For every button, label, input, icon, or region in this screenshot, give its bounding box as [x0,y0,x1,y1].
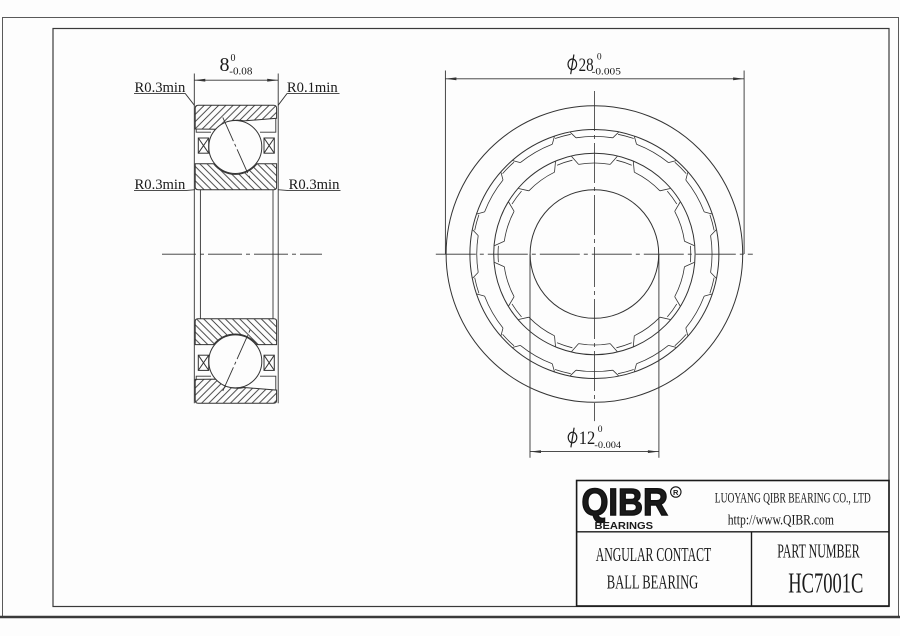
svg-text:-0.004: -0.004 [594,441,621,451]
svg-text:12: 12 [579,428,596,449]
svg-text:BALL BEARING: BALL BEARING [607,572,699,594]
svg-text:http://www.QIBR.com: http://www.QIBR.com [728,513,835,529]
svg-text:8: 8 [220,54,230,76]
svg-text:BEARINGS: BEARINGS [595,520,654,532]
svg-text:0: 0 [231,53,236,64]
svg-text:PART NUMBER: PART NUMBER [777,541,860,563]
svg-text:-0.08: -0.08 [229,67,252,78]
svg-text:HC7001C: HC7001C [788,567,863,599]
svg-text:ANGULAR CONTACT: ANGULAR CONTACT [596,544,712,566]
svg-text:-0.005: -0.005 [592,68,622,78]
svg-text:LUOYANG QIBR BEARING CO., LTD: LUOYANG QIBR BEARING CO., LTD [715,491,871,507]
svg-text:0: 0 [597,53,602,63]
svg-text:QIBR: QIBR [582,482,669,524]
svg-text:0: 0 [598,425,603,435]
svg-text:R: R [673,488,679,497]
